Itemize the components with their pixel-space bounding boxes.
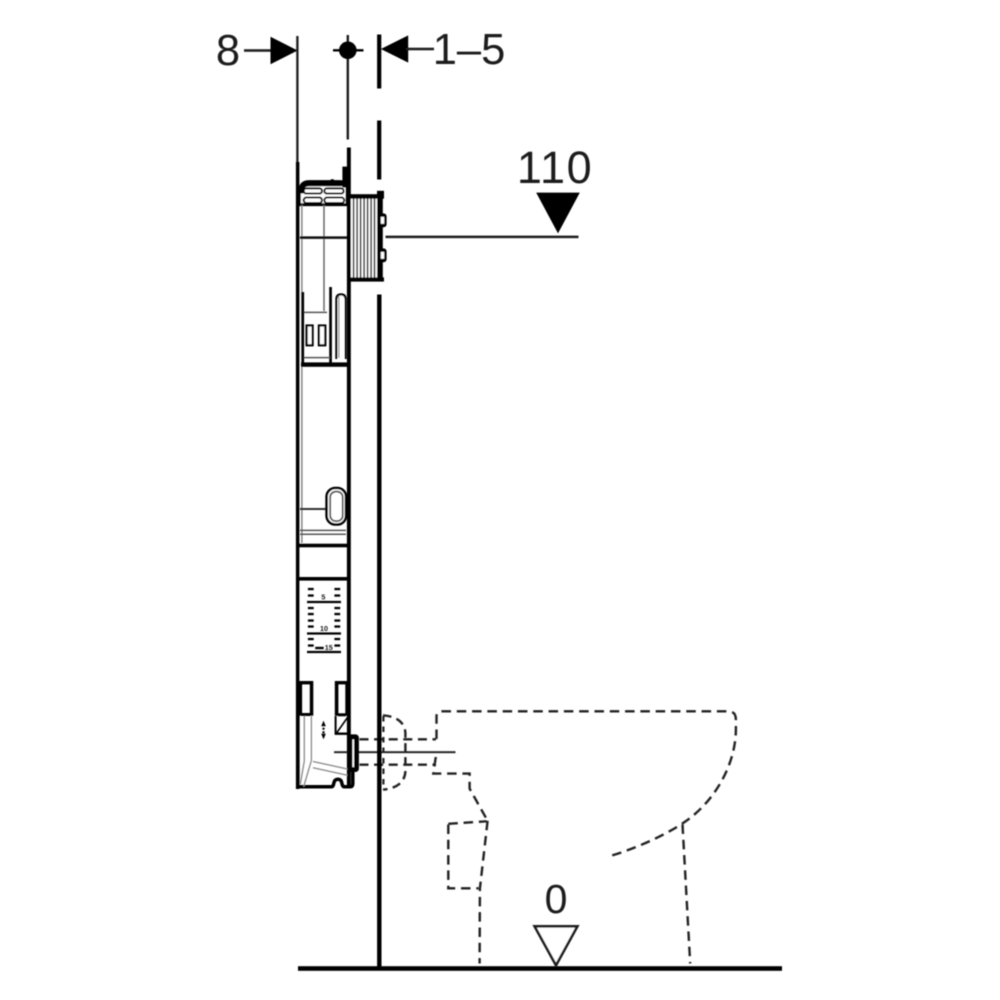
svg-text:110: 110: [517, 142, 593, 193]
svg-text:15: 15: [325, 643, 333, 652]
svg-text:8: 8: [216, 27, 240, 75]
svg-text:0: 0: [545, 876, 568, 922]
svg-text:10: 10: [320, 624, 328, 633]
svg-text:1–5: 1–5: [433, 26, 506, 74]
svg-text:5: 5: [321, 593, 325, 602]
